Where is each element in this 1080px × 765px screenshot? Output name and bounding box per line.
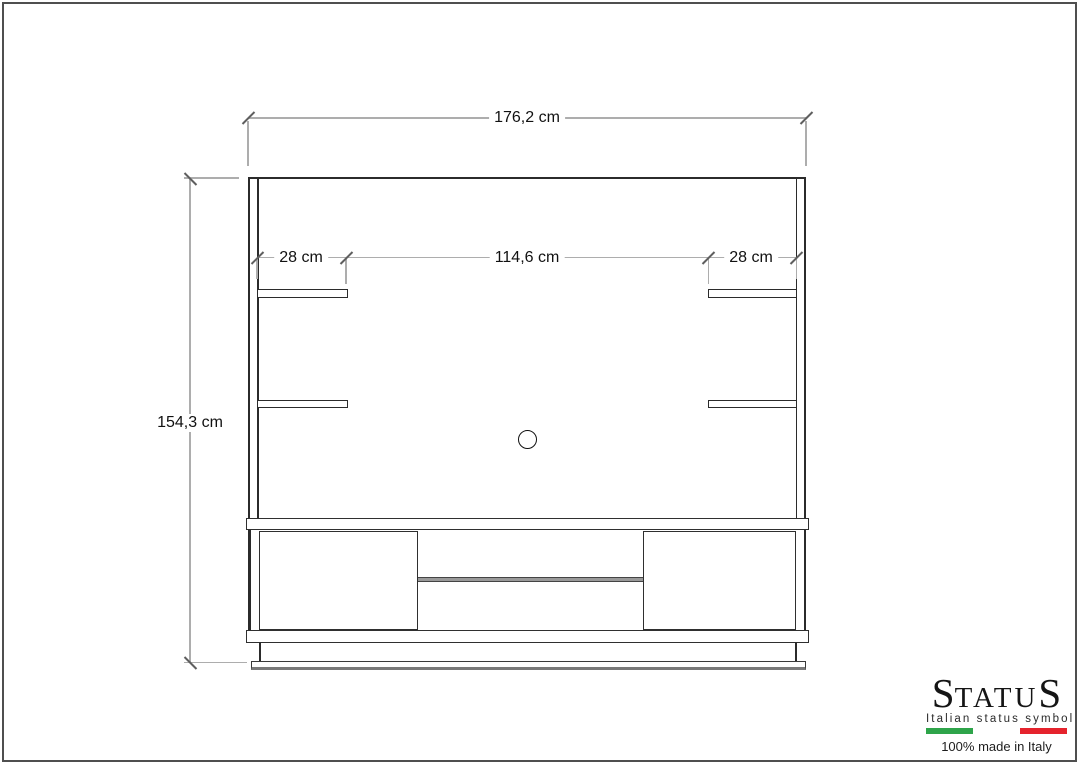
plinth-left-side [259, 642, 261, 661]
dimension-label-left-shelf: 28 cm [274, 249, 328, 267]
extension-drop [796, 259, 797, 279]
waist-shelf-band [246, 518, 809, 531]
dimension-label-center: 114,6 cm [490, 249, 565, 267]
extension-drop [256, 259, 257, 279]
right-lower-shelf [708, 400, 797, 409]
extension-drop [345, 259, 346, 284]
base-plate [251, 661, 807, 671]
left-upper-shelf [257, 289, 348, 298]
left-door [259, 531, 418, 630]
cable-hole-circle [518, 430, 537, 449]
status-logo: STATUS Italian status symbol 100% made i… [926, 673, 1067, 754]
made-in-italy-label: 100% made in Italy [926, 739, 1067, 754]
right-upper-shelf [708, 289, 797, 298]
dimension-label-total-width: 176,2 cm [489, 109, 565, 127]
right-side-panel-inner-line [796, 179, 798, 518]
bottom-shelf-band [246, 630, 809, 643]
upper-cabinet-frame [248, 177, 806, 518]
extension-drop [708, 259, 709, 284]
brand-letter-s-last: S [1038, 673, 1061, 713]
middle-compartment-shelf [418, 577, 643, 582]
extension-line-left [247, 121, 249, 166]
right-door [643, 531, 796, 630]
extension-line-bottom [184, 662, 247, 663]
brand-letter-s-first: S [932, 673, 955, 713]
extension-line-right [805, 121, 807, 166]
drawing-page: 176,2 cm 28 cm 114,6 cm 28 cm 154,3 cm S… [0, 0, 1080, 765]
flag-green-segment [926, 728, 973, 734]
brand-tagline: Italian status symbol [926, 713, 1067, 725]
left-lower-shelf [257, 400, 348, 409]
italian-flag-stripe [926, 728, 1067, 734]
lower-cabinet-left-side [248, 530, 251, 630]
lower-cabinet-right-side [804, 530, 807, 630]
flag-red-segment [1020, 728, 1067, 734]
dimension-label-right-shelf: 28 cm [724, 249, 778, 267]
flag-white-segment [973, 728, 1020, 734]
dimension-label-total-height: 154,3 cm [152, 414, 228, 432]
brand-letters-mid: TATU [955, 683, 1039, 713]
brand-wordmark: STATUS [926, 673, 1067, 713]
plinth-right-side [795, 642, 797, 661]
left-side-panel-inner-line [257, 179, 259, 518]
